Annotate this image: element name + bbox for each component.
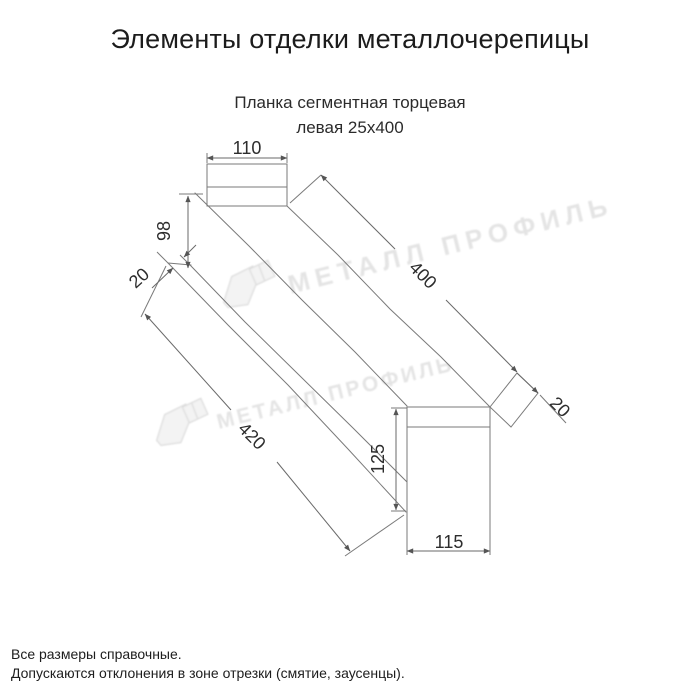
extension-lines (141, 153, 566, 556)
watermark-brand-text: МЕТАЛЛ ПРОФИЛЬ (285, 190, 616, 300)
dim-label-right-hem: 20 (546, 393, 574, 421)
dim-label-right-end-width: 115 (435, 532, 464, 552)
metal-profil-logo-icon (149, 398, 213, 448)
watermark-row-lower: МЕТАЛЛ ПРОФИЛЬ (149, 337, 456, 449)
footnotes: Все размеры справочные. Допускаются откл… (11, 645, 651, 683)
dim-line-20-right (517, 373, 538, 393)
dim-line-400-b (446, 300, 517, 372)
dimension-lines (145, 158, 538, 551)
technical-drawing: МЕТАЛЛ ПРОФИЛЬ МЕТАЛЛ ПРОФИЛЬ (0, 0, 700, 700)
dim-label-top-flange-width: 110 (233, 138, 262, 158)
dim-label-left-hem: 20 (125, 264, 153, 292)
dim-line-420-a (145, 314, 231, 410)
footnote-1: Все размеры справочные. (11, 645, 651, 664)
watermark-row-upper: МЕТАЛЛ ПРОФИЛЬ (216, 176, 616, 316)
strip-outline (168, 164, 538, 527)
dim-line-420-b (277, 462, 350, 551)
dim-line-400-a (321, 175, 395, 249)
dim-label-left-end-height: 98 (154, 221, 174, 241)
page: Элементы отделки металлочерепицы Планка … (0, 0, 700, 700)
dim-line-20-left-b (152, 268, 173, 288)
right-hem-flange (490, 373, 538, 427)
dimension-labels: 110 98 20 400 20 420 125 115 (125, 138, 574, 552)
dim-label-right-end-height: 125 (368, 444, 388, 474)
left-tab-outline (207, 164, 287, 206)
dim-line-20-left-a (184, 245, 196, 257)
footnote-2: Допускаются отклонения в зоне отрезки (с… (11, 664, 651, 683)
